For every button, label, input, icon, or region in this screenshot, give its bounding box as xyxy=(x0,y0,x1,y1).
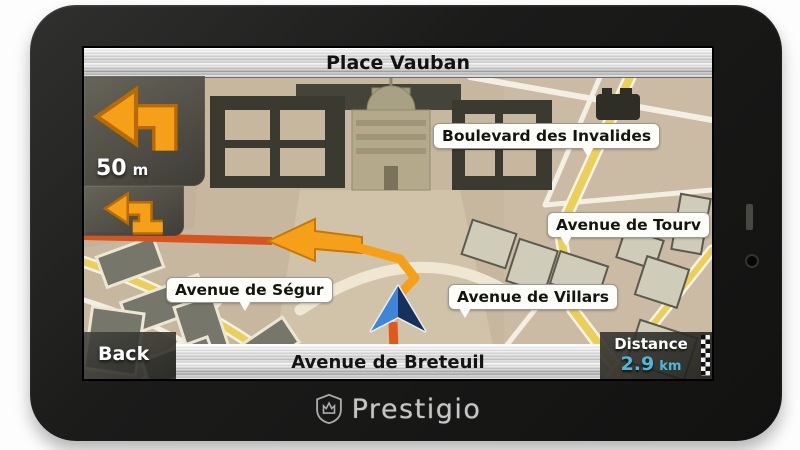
label-tail xyxy=(560,236,572,246)
street-label-text: Avenue de Villars xyxy=(457,288,609,306)
street-label-text: Avenue de Tourv xyxy=(556,216,701,234)
label-tail xyxy=(459,308,471,318)
back-button-label: Back xyxy=(98,343,149,365)
brand-logo: Prestigio xyxy=(84,386,712,432)
street-label-text: Avenue de Ségur xyxy=(175,281,324,299)
turn-left-arrow-icon xyxy=(84,76,205,154)
distance-to-turn-unit: m xyxy=(133,161,149,179)
next-street-name: Place Vauban xyxy=(326,52,470,74)
label-tail xyxy=(582,147,594,157)
navigation-screen[interactable]: Boulevard des Invalides Avenue de Tourv … xyxy=(84,48,712,379)
street-label-text: Boulevard des Invalides xyxy=(442,127,651,145)
street-label-avenue-de-tourville: Avenue de Tourv xyxy=(547,212,710,238)
maneuver-panel[interactable]: 50m xyxy=(84,76,205,186)
current-street-bar[interactable]: Avenue de Breteuil xyxy=(176,344,600,379)
distance-to-turn-value: 50 xyxy=(96,156,127,181)
label-tail xyxy=(239,301,251,311)
gps-device-frame: Boulevard des Invalides Avenue de Tourv … xyxy=(30,5,782,441)
street-label-boulevard-des-invalides: Boulevard des Invalides xyxy=(433,123,660,149)
screenshot-stage: Boulevard des Invalides Avenue de Tourv … xyxy=(0,0,800,450)
street-label-avenue-de-villars: Avenue de Villars xyxy=(448,284,618,310)
checkered-flag-icon xyxy=(701,335,710,376)
shield-crown-icon xyxy=(315,393,343,425)
reset-pinhole xyxy=(745,254,759,268)
distance-value: 2.9 xyxy=(621,353,655,375)
distance-label: Distance xyxy=(606,335,696,353)
light-sensor-slot xyxy=(746,204,753,230)
street-label-avenue-de-segur: Avenue de Ségur xyxy=(166,277,333,303)
next-maneuver-panel[interactable] xyxy=(84,186,184,236)
turn-left-arrow-icon xyxy=(84,186,184,236)
back-button[interactable]: Back xyxy=(84,332,176,379)
distance-unit: km xyxy=(659,359,681,374)
distance-panel[interactable]: Distance 2.9km xyxy=(600,332,712,379)
next-street-bar[interactable]: Place Vauban xyxy=(84,48,712,78)
current-street-name: Avenue de Breteuil xyxy=(291,352,484,373)
distance-to-turn: 50m xyxy=(96,156,148,181)
brand-name: Prestigio xyxy=(352,394,482,425)
